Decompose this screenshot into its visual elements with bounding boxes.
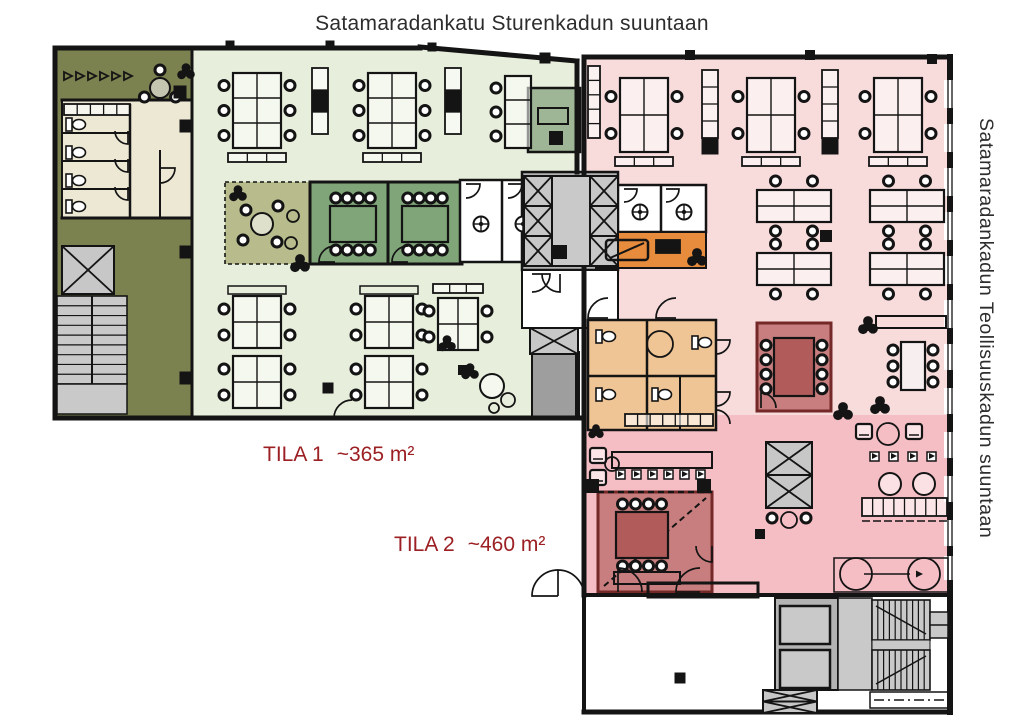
pillar <box>927 54 937 64</box>
toilet <box>66 118 86 131</box>
toilet <box>66 146 86 159</box>
pillar <box>180 246 193 259</box>
window <box>944 432 956 458</box>
tila1-size: ~365 m² <box>337 443 415 466</box>
pillar <box>540 53 551 64</box>
toilet <box>692 336 712 349</box>
toilet <box>66 174 86 187</box>
window <box>944 168 956 196</box>
conference-table <box>888 342 938 390</box>
pillar <box>323 383 334 394</box>
window <box>944 556 956 580</box>
fixture <box>57 384 127 414</box>
chair <box>273 201 283 211</box>
pillar <box>174 86 187 99</box>
round-table <box>913 473 935 495</box>
desk-cluster <box>491 76 531 148</box>
armchair <box>906 424 922 439</box>
elevator-shaft <box>766 442 812 508</box>
street-label-east: Satamaradankadun Teollisuuskadun suuntaa… <box>974 118 997 538</box>
fixture <box>656 240 680 253</box>
staircase <box>57 296 127 384</box>
pillar <box>180 120 193 133</box>
toilet <box>596 388 616 401</box>
chair <box>241 205 251 215</box>
pillar <box>697 479 711 493</box>
fixture <box>780 606 830 644</box>
armchair <box>856 424 872 439</box>
cabinet <box>822 70 838 138</box>
toilet <box>652 388 672 401</box>
zone-core-room-south <box>532 352 579 418</box>
window <box>944 256 956 284</box>
pillar <box>805 50 815 60</box>
elevator-shaft <box>524 176 552 266</box>
pillar <box>702 138 719 155</box>
elevator-shaft <box>62 246 114 294</box>
round-table <box>879 473 901 495</box>
pillar <box>820 230 832 242</box>
street-label-north: Satamaradankatu Sturenkadun suuntaan <box>0 12 1024 36</box>
pillar <box>685 50 695 60</box>
window <box>944 388 956 414</box>
cabinet <box>588 66 600 138</box>
chair <box>272 237 282 247</box>
pillar <box>675 673 686 684</box>
window <box>944 124 956 152</box>
cabinet <box>862 498 947 516</box>
cabinet <box>625 414 713 426</box>
toilet <box>596 330 616 343</box>
elevator-shaft <box>763 690 817 713</box>
window <box>944 212 956 240</box>
pillar <box>226 41 235 50</box>
tila2-size: ~460 m² <box>468 533 546 556</box>
door-arc <box>558 570 584 596</box>
zone-stair-lobby <box>838 598 872 690</box>
cabinet <box>312 68 328 134</box>
cabinet <box>64 104 130 115</box>
pillar <box>428 43 437 52</box>
floor-plan-page: Satamaradankatu Sturenkadun suuntaan Sat… <box>0 0 1024 725</box>
pillar <box>822 138 839 155</box>
window <box>944 344 956 370</box>
round-table <box>251 213 273 235</box>
pillar <box>585 479 599 493</box>
pillar <box>458 365 468 375</box>
pillar <box>326 41 335 50</box>
tila2-name: TILA 2 <box>394 533 455 556</box>
area-label-tila2: TILA 2~460 m² <box>394 533 545 557</box>
copier <box>633 205 648 220</box>
chair <box>767 513 777 523</box>
elevator-shaft <box>590 176 618 266</box>
chair <box>801 513 811 523</box>
elevator-shaft <box>530 328 578 354</box>
fixture <box>872 640 930 650</box>
cabinet <box>445 68 461 134</box>
copier <box>677 205 692 220</box>
floor-plan-drawing <box>0 0 1024 725</box>
toilet <box>66 200 86 213</box>
cabinet <box>702 70 718 138</box>
copier <box>474 217 489 232</box>
window <box>944 520 956 546</box>
area-label-tila1: TILA 1~365 m² <box>263 443 414 467</box>
pillar <box>180 372 193 385</box>
pillar <box>755 529 765 539</box>
pillar <box>549 131 563 145</box>
round-table <box>480 374 504 398</box>
pillar <box>553 245 567 259</box>
fixture <box>780 650 830 688</box>
door-arc <box>532 570 558 596</box>
chair <box>238 235 248 245</box>
tila1-name: TILA 1 <box>263 443 324 466</box>
armchair <box>590 448 606 463</box>
window <box>944 80 956 108</box>
